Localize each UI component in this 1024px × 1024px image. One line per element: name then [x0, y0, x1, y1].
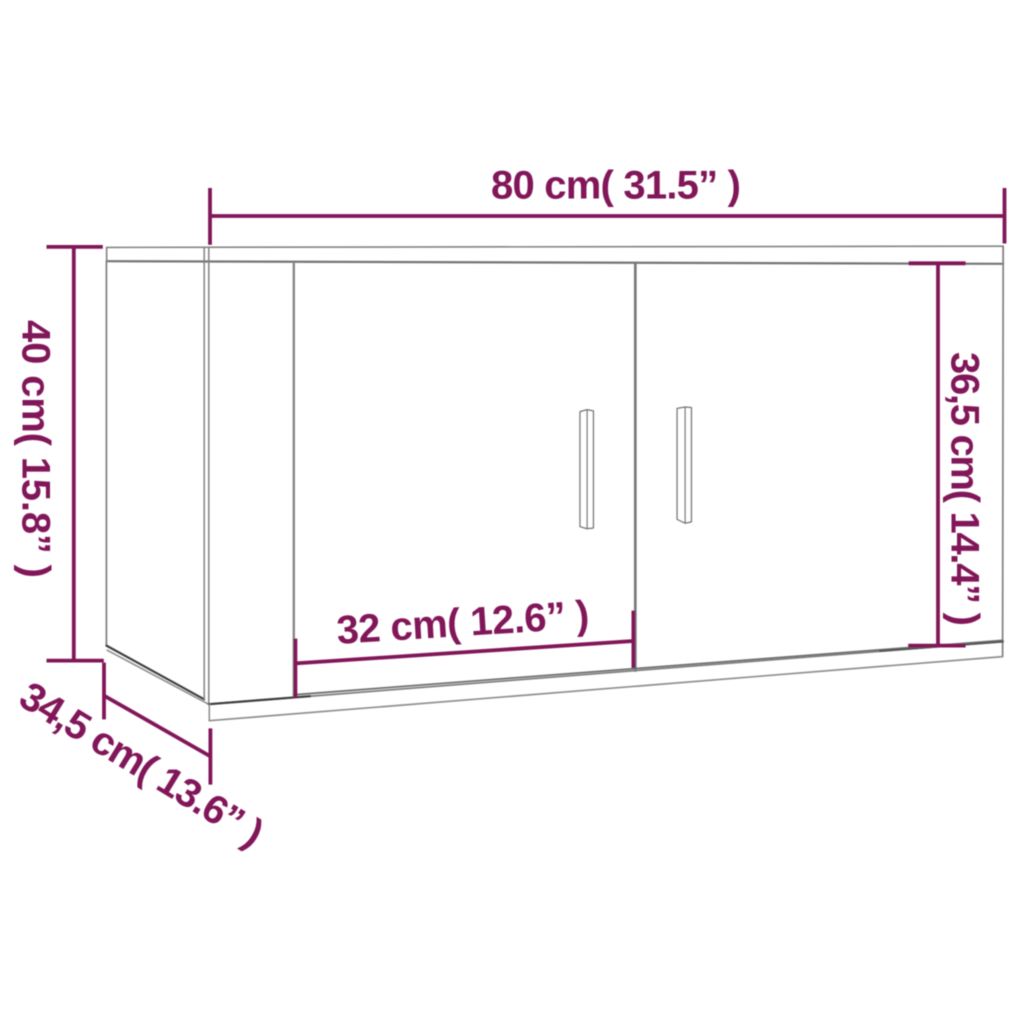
svg-text:36,5 cm( 14.4” ): 36,5 cm( 14.4” ) [943, 352, 987, 626]
svg-text:40 cm( 15.8” ): 40 cm( 15.8” ) [14, 320, 58, 578]
svg-text:34,5 cm( 13.6” ): 34,5 cm( 13.6” ) [12, 674, 271, 856]
svg-text:32 cm( 12.6” ): 32 cm( 12.6” ) [335, 593, 590, 653]
svg-text:80 cm( 31.5” ): 80 cm( 31.5” ) [491, 164, 741, 208]
